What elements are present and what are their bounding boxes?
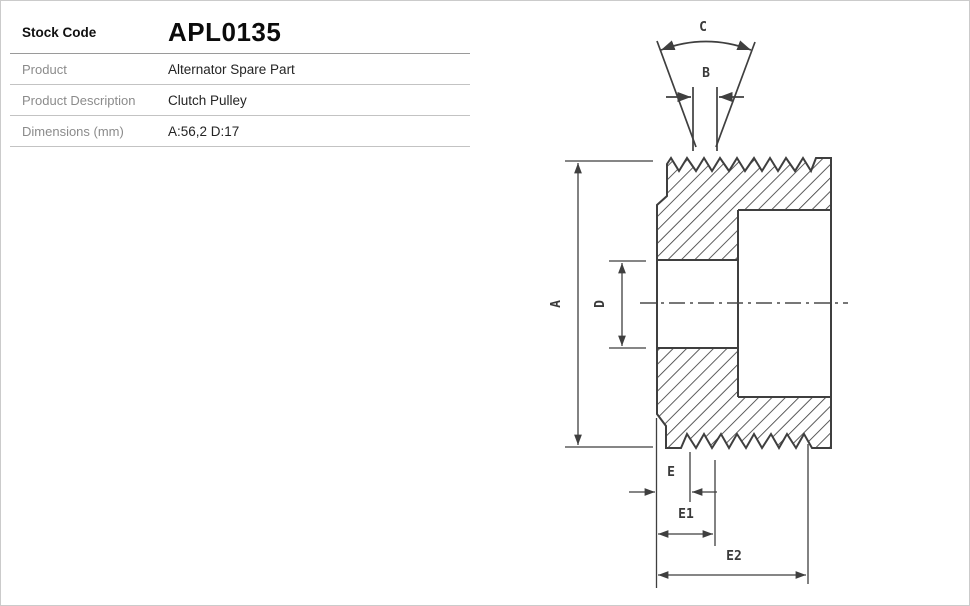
technical-drawing: C B A D E E1 E2 bbox=[0, 0, 970, 606]
groove-flank-right bbox=[716, 42, 755, 147]
groove-angle-arc bbox=[661, 42, 751, 51]
dim-d-label: D bbox=[593, 300, 608, 308]
dim-e1-label: E1 bbox=[678, 507, 694, 522]
groove-flank-left bbox=[657, 41, 696, 147]
groove-detail: C B bbox=[657, 20, 755, 151]
dim-e-label: E bbox=[667, 465, 675, 480]
groove-width-label: B bbox=[702, 66, 710, 81]
dim-e2-label: E2 bbox=[726, 549, 742, 564]
dimension-d: D bbox=[593, 261, 646, 348]
groove-angle-label: C bbox=[699, 20, 707, 35]
dim-a-label: A bbox=[549, 300, 564, 308]
